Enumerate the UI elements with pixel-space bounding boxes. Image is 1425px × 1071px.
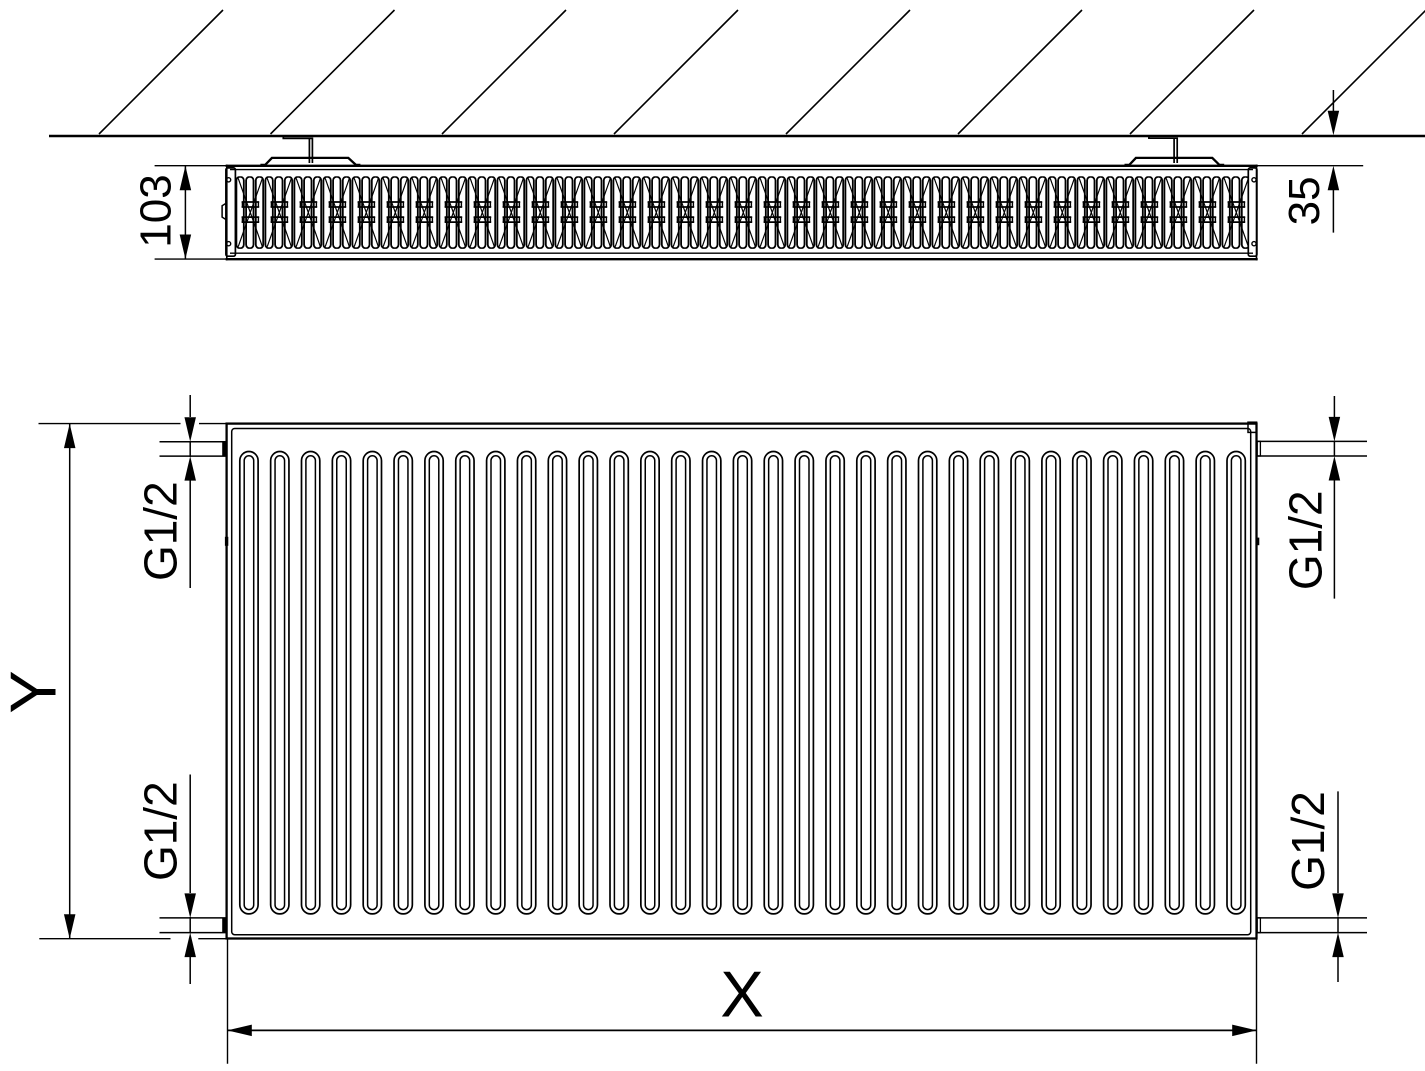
svg-text:G1/2: G1/2 xyxy=(1282,791,1334,891)
svg-text:103: 103 xyxy=(131,174,180,247)
svg-text:G1/2: G1/2 xyxy=(135,481,187,581)
svg-text:G1/2: G1/2 xyxy=(135,781,187,881)
svg-text:35: 35 xyxy=(1280,176,1329,225)
svg-text:Y: Y xyxy=(0,670,70,713)
svg-text:X: X xyxy=(720,957,763,1030)
svg-text:G1/2: G1/2 xyxy=(1280,490,1332,590)
